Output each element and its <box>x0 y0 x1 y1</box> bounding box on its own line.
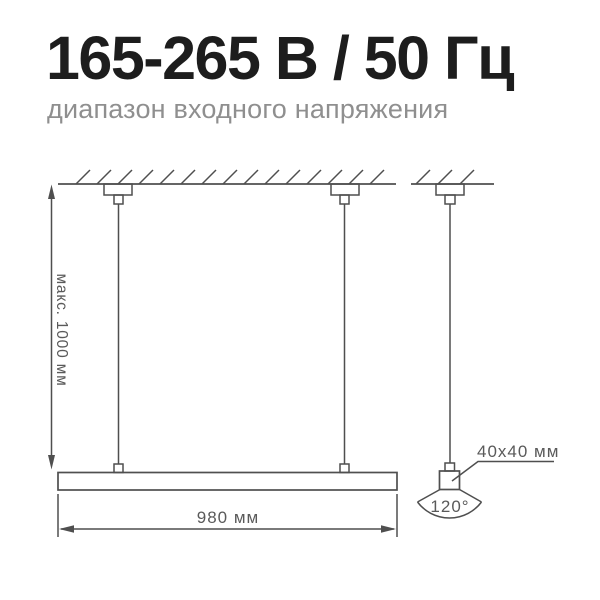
profile-leader-line <box>452 462 554 482</box>
installation-diagram: макс. 1000 мм 980 мм 40x40 мм 120° <box>0 0 600 600</box>
cable-connector-side <box>445 463 455 471</box>
ceiling-mount-side-nipple <box>445 195 455 204</box>
profile-size-label: 40x40 мм <box>477 442 559 461</box>
height-dimension-arrow-up <box>48 185 55 200</box>
height-dimension-arrow-down <box>48 455 55 470</box>
ceiling-mount-right <box>331 184 359 195</box>
beam-angle-label: 120° <box>430 497 469 516</box>
length-dimension-arrow-right <box>381 525 396 533</box>
cable-connector-right <box>340 464 349 473</box>
ceiling-hatching-front <box>76 170 384 184</box>
light-bar <box>58 473 397 491</box>
length-dimension-label: 980 мм <box>197 508 259 527</box>
side-profile-square <box>440 471 460 490</box>
ceiling-mount-left-nipple <box>114 195 123 204</box>
page-root: 165-265 В / 50 Гц диапазон входного напр… <box>0 0 600 600</box>
ceiling-hatching-side <box>416 170 474 184</box>
ceiling-mount-left <box>104 184 132 195</box>
cable-connector-left <box>114 464 123 473</box>
ceiling-mount-right-nipple <box>340 195 349 204</box>
ceiling-mount-side <box>436 184 464 195</box>
height-dimension-label: макс. 1000 мм <box>53 273 70 386</box>
length-dimension-arrow-left <box>59 525 74 533</box>
